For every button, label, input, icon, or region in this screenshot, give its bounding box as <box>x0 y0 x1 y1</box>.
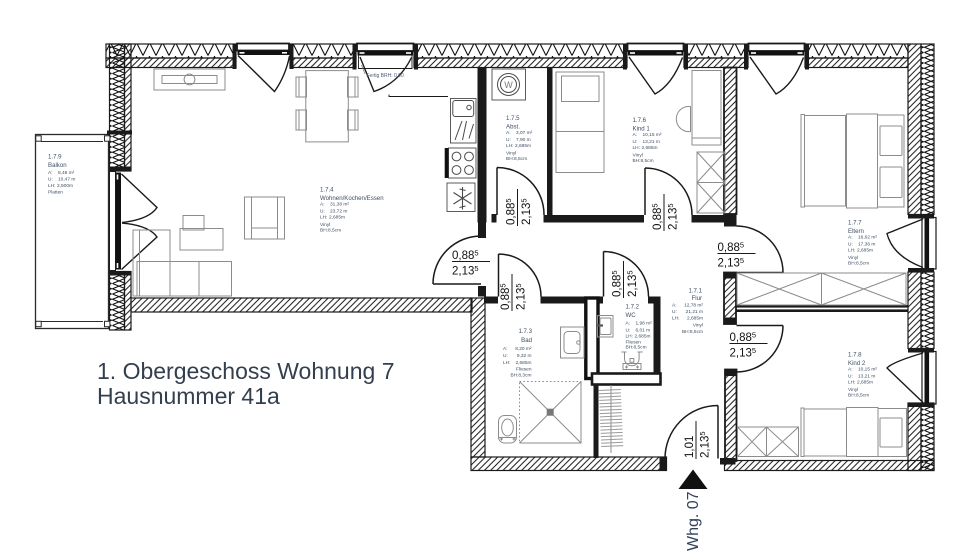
svg-text:Vinyl: Vinyl <box>848 387 858 393</box>
svg-text:Vinyl: Vinyl <box>693 323 703 329</box>
svg-text:2,685m: 2,685m <box>642 145 658 151</box>
svg-text:LH:: LH: <box>633 145 640 151</box>
svg-text:BH:8,5cm: BH:8,5cm <box>848 393 869 399</box>
svg-text:A:: A: <box>626 321 631 327</box>
svg-text:6,01 m: 6,01 m <box>636 327 651 333</box>
svg-text:Vinyl: Vinyl <box>320 222 330 228</box>
svg-text:BH:8,3cm: BH:8,3cm <box>510 373 531 379</box>
svg-text:Vinyl: Vinyl <box>633 153 643 159</box>
svg-text:LH:: LH: <box>848 380 855 386</box>
svg-text:7,90 m: 7,90 m <box>516 137 531 143</box>
svg-text:Hausnummer 41a: Hausnummer 41a <box>97 383 280 409</box>
svg-text:BH:8,5cm: BH:8,5cm <box>682 329 703 335</box>
svg-text:BH:8,5cm: BH:8,5cm <box>626 344 647 350</box>
svg-text:Vinyl: Vinyl <box>848 255 858 261</box>
svg-text:2,685m: 2,685m <box>687 316 703 322</box>
svg-text:Balkon: Balkon <box>48 162 67 169</box>
svg-text:A:: A: <box>320 202 325 208</box>
svg-text:2,500m: 2,500m <box>57 183 73 189</box>
svg-text:Flur: Flur <box>692 295 703 302</box>
svg-text:LH:: LH: <box>506 143 513 149</box>
svg-text:1.7.8: 1.7.8 <box>848 352 862 359</box>
svg-text:3,07 m²: 3,07 m² <box>516 130 533 136</box>
svg-text:13,21 m: 13,21 m <box>643 139 660 145</box>
svg-text:10,15 m²: 10,15 m² <box>643 132 662 138</box>
svg-text:10,15 m²: 10,15 m² <box>858 367 877 373</box>
svg-text:BH:8,5cm: BH:8,5cm <box>320 228 341 234</box>
svg-text:17,36 m: 17,36 m <box>858 242 875 248</box>
svg-text:1.7.2: 1.7.2 <box>626 304 640 311</box>
svg-text:1.7.9: 1.7.9 <box>48 154 62 161</box>
svg-text:A:: A: <box>672 303 677 309</box>
svg-text:16,62 m²: 16,62 m² <box>858 235 877 241</box>
svg-text:2,685m: 2,685m <box>857 380 873 386</box>
svg-text:U:: U: <box>503 353 508 359</box>
svg-text:BH:8,5cm: BH:8,5cm <box>506 156 527 162</box>
svg-text:LH:: LH: <box>503 360 510 366</box>
svg-text:Kind 1: Kind 1 <box>633 126 651 133</box>
svg-text:Vinyl: Vinyl <box>506 151 516 157</box>
svg-text:BH:8,5cm: BH:8,5cm <box>633 158 654 164</box>
svg-text:Fertig BRH: 0,90: Fertig BRH: 0,90 <box>367 73 404 79</box>
svg-text:Whg. 07: Whg. 07 <box>685 491 702 551</box>
svg-text:1.7.3: 1.7.3 <box>518 328 532 335</box>
svg-text:1.7.6: 1.7.6 <box>633 117 647 124</box>
svg-text:LH:: LH: <box>48 183 55 189</box>
svg-text:Kind 2: Kind 2 <box>848 360 866 367</box>
svg-text:U:: U: <box>848 374 853 380</box>
svg-text:Eltern: Eltern <box>848 228 864 235</box>
svg-text:A:: A: <box>48 170 53 176</box>
svg-text:1.7.5: 1.7.5 <box>506 115 520 122</box>
svg-text:9,32 m: 9,32 m <box>517 353 532 359</box>
svg-text:U:: U: <box>848 242 853 248</box>
svg-text:13,21 m: 13,21 m <box>858 374 875 380</box>
svg-text:A:: A: <box>633 132 638 138</box>
svg-text:12,78 m²: 12,78 m² <box>684 303 703 309</box>
svg-text:BH:8,5cm: BH:8,5cm <box>848 261 869 267</box>
svg-text:Wohnen/Kochen/Essen: Wohnen/Kochen/Essen <box>320 195 384 202</box>
svg-text:21,21 m: 21,21 m <box>686 309 703 315</box>
svg-text:1.7.4: 1.7.4 <box>320 187 334 194</box>
svg-text:U:: U: <box>48 177 53 183</box>
svg-text:2,685m: 2,685m <box>635 333 651 339</box>
svg-text:2,685m: 2,685m <box>329 215 345 221</box>
svg-text:31,38 m²: 31,38 m² <box>330 202 349 208</box>
svg-text:U:: U: <box>626 327 631 333</box>
svg-text:U:: U: <box>320 209 325 215</box>
svg-text:Fliesen: Fliesen <box>516 367 532 373</box>
svg-text:2,685m: 2,685m <box>516 360 532 366</box>
svg-text:U:: U: <box>672 309 677 315</box>
svg-text:A:: A: <box>506 130 511 136</box>
svg-text:Bad: Bad <box>521 337 532 344</box>
svg-text:LH:: LH: <box>320 215 327 221</box>
svg-text:A:: A: <box>503 346 508 352</box>
svg-text:Abst.: Abst. <box>506 124 520 131</box>
svg-text:8,48 m²: 8,48 m² <box>58 170 75 176</box>
svg-text:8,20 m²: 8,20 m² <box>515 346 532 352</box>
svg-text:A:: A: <box>848 235 853 241</box>
svg-text:2,685m: 2,685m <box>857 248 873 254</box>
svg-text:2,685m: 2,685m <box>515 143 531 149</box>
svg-text:A:: A: <box>848 367 853 373</box>
svg-text:1,01: 1,01 <box>684 436 696 458</box>
svg-text:LH:: LH: <box>626 333 633 339</box>
svg-text:U:: U: <box>506 137 511 143</box>
svg-text:1.7.1: 1.7.1 <box>688 288 702 295</box>
svg-text:1,98 m²: 1,98 m² <box>636 321 653 327</box>
svg-text:1. Obergeschoss Wohnung 7: 1. Obergeschoss Wohnung 7 <box>97 358 394 384</box>
svg-text:LH:: LH: <box>848 248 855 254</box>
svg-text:Platten: Platten <box>48 190 63 196</box>
svg-text:10,47 m: 10,47 m <box>58 177 75 183</box>
svg-text:LH:: LH: <box>672 316 679 322</box>
svg-text:23,72 m: 23,72 m <box>330 209 347 215</box>
svg-text:U:: U: <box>633 139 638 145</box>
svg-text:WC: WC <box>626 312 637 319</box>
svg-text:W: W <box>504 80 513 90</box>
svg-text:1.7.7: 1.7.7 <box>848 220 862 227</box>
